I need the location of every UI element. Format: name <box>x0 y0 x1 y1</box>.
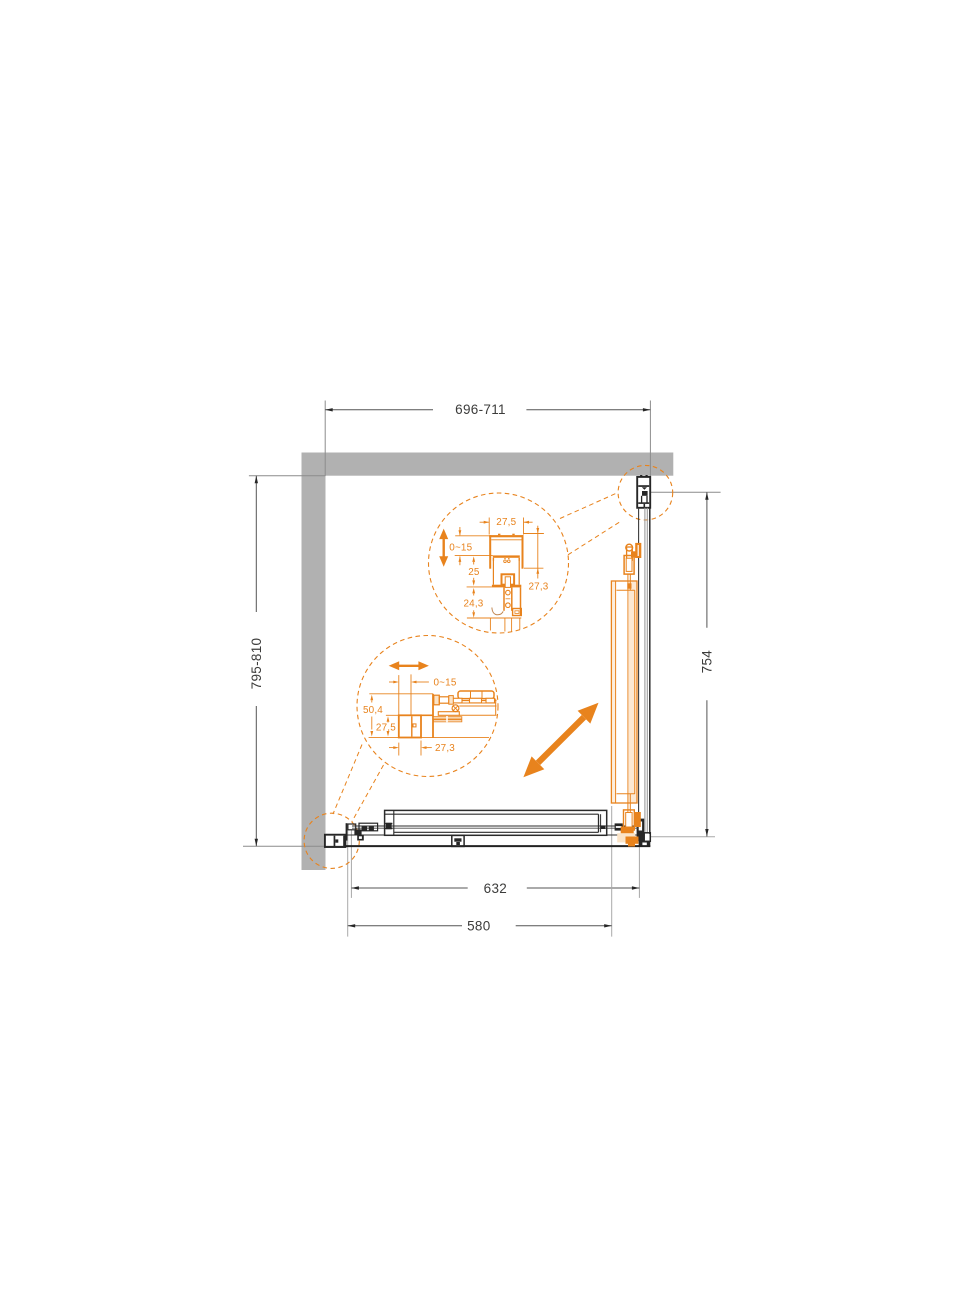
svg-text:632: 632 <box>484 881 507 896</box>
svg-text:0~15: 0~15 <box>449 543 472 554</box>
svg-text:696-711: 696-711 <box>455 402 506 417</box>
svg-text:27,3: 27,3 <box>435 743 455 754</box>
svg-text:27,3: 27,3 <box>528 581 548 592</box>
svg-text:24,3: 24,3 <box>463 598 483 609</box>
svg-text:795-810: 795-810 <box>249 638 264 690</box>
svg-text:754: 754 <box>700 650 715 674</box>
svg-text:580: 580 <box>467 919 490 934</box>
svg-text:27,5: 27,5 <box>376 722 396 733</box>
svg-text:0~15: 0~15 <box>433 678 456 689</box>
svg-text:50,4: 50,4 <box>363 705 383 716</box>
svg-text:25: 25 <box>468 567 480 578</box>
svg-text:27,5: 27,5 <box>496 517 516 528</box>
